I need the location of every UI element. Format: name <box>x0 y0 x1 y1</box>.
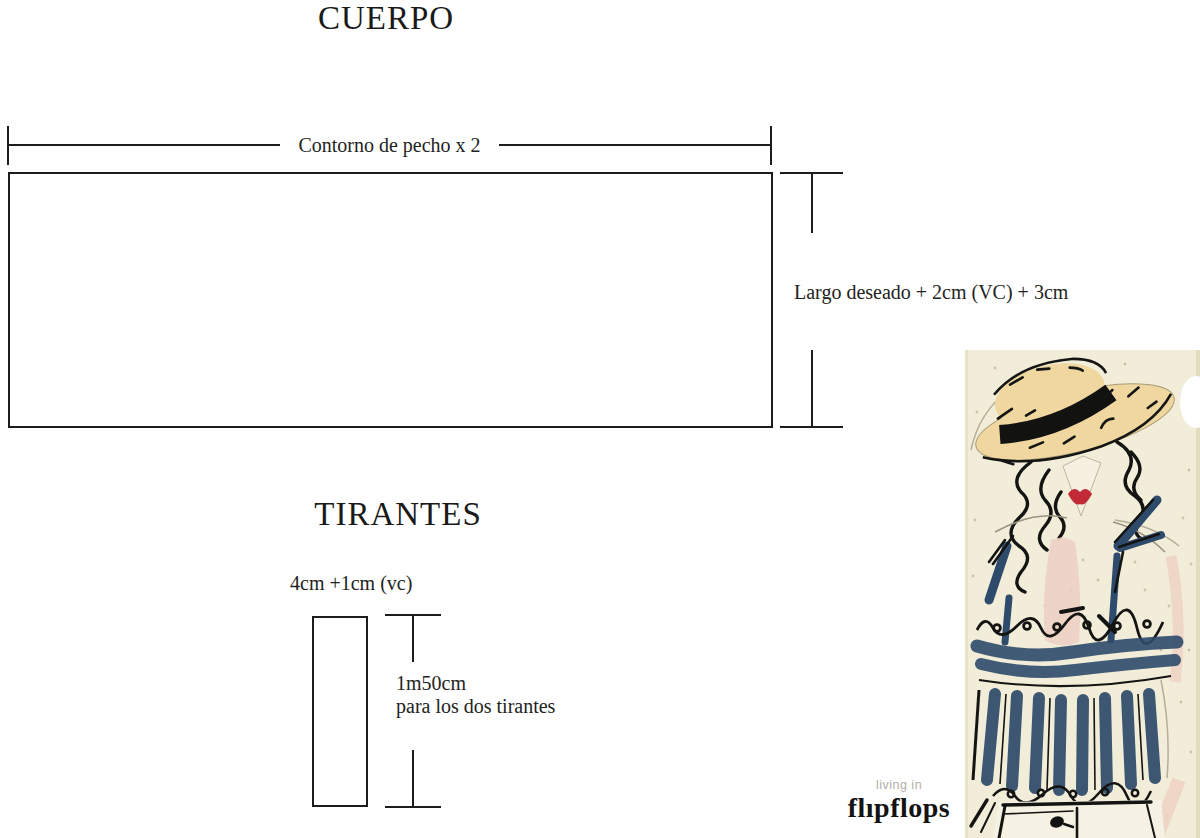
logo-brand: flıpflops <box>826 793 972 822</box>
strap-length-value: 1m50cm <box>396 672 555 695</box>
fashion-sketch-svg <box>965 350 1200 838</box>
strap-length-note: para los dos tirantes <box>396 695 555 718</box>
strap-width-label: 4cm +1cm (vc) <box>290 572 412 595</box>
ruffle-underline <box>979 676 1171 686</box>
logo-tagline: living in <box>826 779 972 792</box>
strap-pattern-rectangle <box>312 616 368 807</box>
strap-dimension-stem-bottom <box>412 750 414 807</box>
width-dimension-line: Contorno de pecho x 2 <box>9 132 770 158</box>
brand-logo: living in flıpflops <box>826 779 972 823</box>
body-length-label: Largo deseado + 2cm (VC) + 3cm <box>794 281 1068 304</box>
strap-dimension-tick-bottom <box>385 806 441 808</box>
scan-notch <box>1180 376 1200 428</box>
strap-dimension-stem-top <box>412 615 414 662</box>
bottom-left-strokes <box>971 800 995 832</box>
body-pattern-rectangle <box>8 172 773 428</box>
fashion-illustration <box>965 350 1200 838</box>
section-title-tirantes: TIRANTES <box>198 496 598 533</box>
paper-edge-left <box>965 350 968 838</box>
ruffle-band <box>977 642 1177 672</box>
length-dimension-stem-bottom <box>811 350 813 427</box>
face <box>1063 456 1101 516</box>
body-width-label: Contorno de pecho x 2 <box>298 134 480 157</box>
strap-length-label: 1m50cm para los dos tirantes <box>396 672 555 718</box>
section-title-cuerpo: CUERPO <box>0 0 772 37</box>
sewing-pattern-sheet: CUERPO Contorno de pecho x 2 Largo desea… <box>0 0 1200 838</box>
straw-hat <box>965 350 1182 477</box>
striped-top <box>987 694 1155 790</box>
dimension-line-segment <box>9 144 280 146</box>
length-dimension-stem-top <box>811 173 813 233</box>
dimension-line-segment <box>499 144 770 146</box>
length-dimension-tick-bottom <box>780 426 843 428</box>
width-dimension-tick-right <box>770 126 772 165</box>
